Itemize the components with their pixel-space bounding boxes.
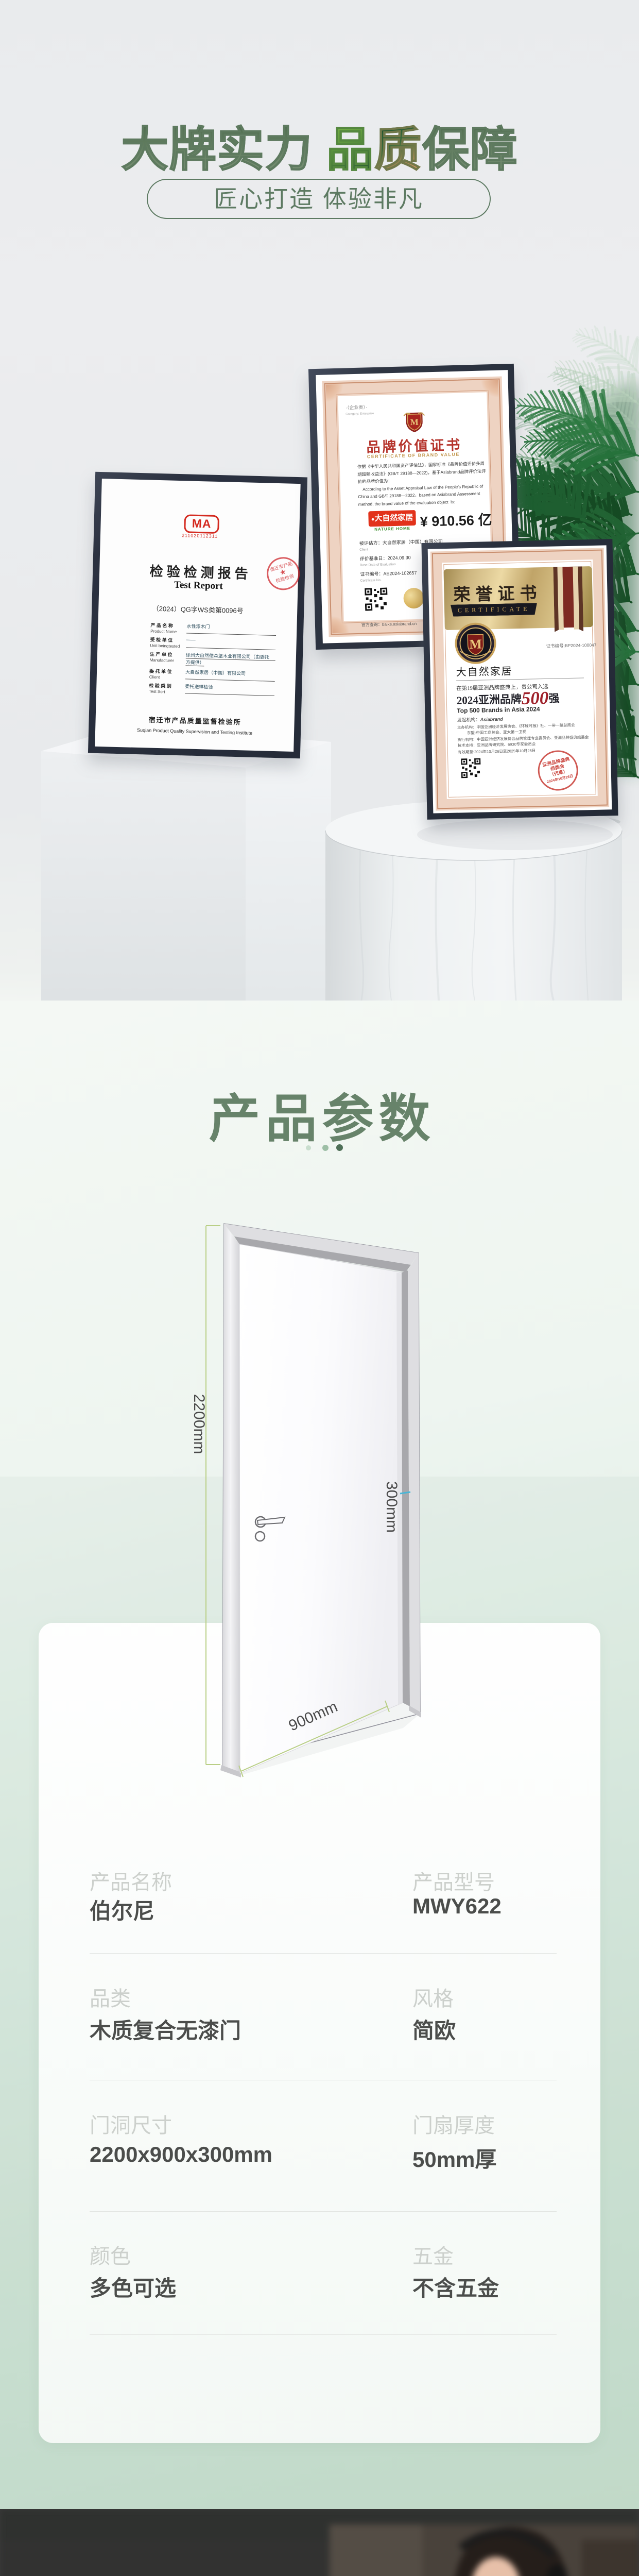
svg-text:M: M — [410, 417, 419, 427]
svg-text:M: M — [469, 637, 482, 652]
